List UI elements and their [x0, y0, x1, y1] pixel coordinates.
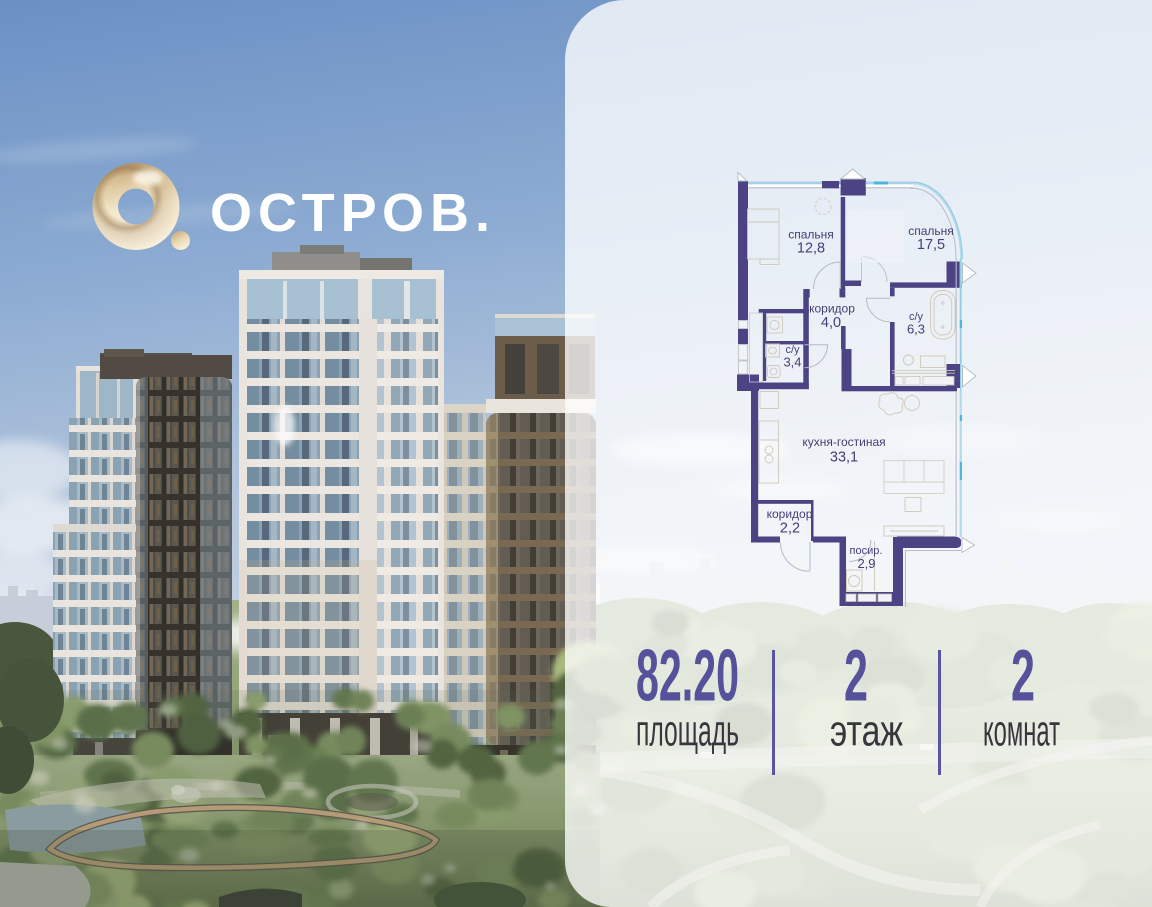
svg-text:спальня: спальня [908, 224, 954, 238]
svg-text:этаж: этаж [830, 707, 903, 756]
svg-text:6,3: 6,3 [907, 322, 925, 337]
svg-text:ОСТРОВ.: ОСТРОВ. [210, 183, 496, 243]
svg-text:3,4: 3,4 [783, 355, 801, 370]
svg-text:коридор: коридор [767, 507, 813, 521]
svg-text:82.20: 82.20 [636, 636, 739, 717]
svg-text:кухня-гостиная: кухня-гостиная [802, 435, 885, 449]
svg-text:спальня: спальня [788, 228, 834, 242]
svg-text:площадь: площадь [636, 707, 739, 756]
svg-text:комнат: комнат [983, 707, 1060, 756]
svg-text:2: 2 [844, 636, 868, 717]
svg-text:17,5: 17,5 [917, 237, 945, 253]
svg-text:12,8: 12,8 [797, 241, 825, 257]
svg-text:коридор: коридор [809, 302, 855, 316]
svg-text:2: 2 [1011, 636, 1035, 717]
svg-text:2,9: 2,9 [857, 556, 875, 571]
svg-text:33,1: 33,1 [830, 450, 858, 466]
svg-text:4,0: 4,0 [821, 315, 841, 331]
svg-text:2,2: 2,2 [780, 521, 800, 537]
